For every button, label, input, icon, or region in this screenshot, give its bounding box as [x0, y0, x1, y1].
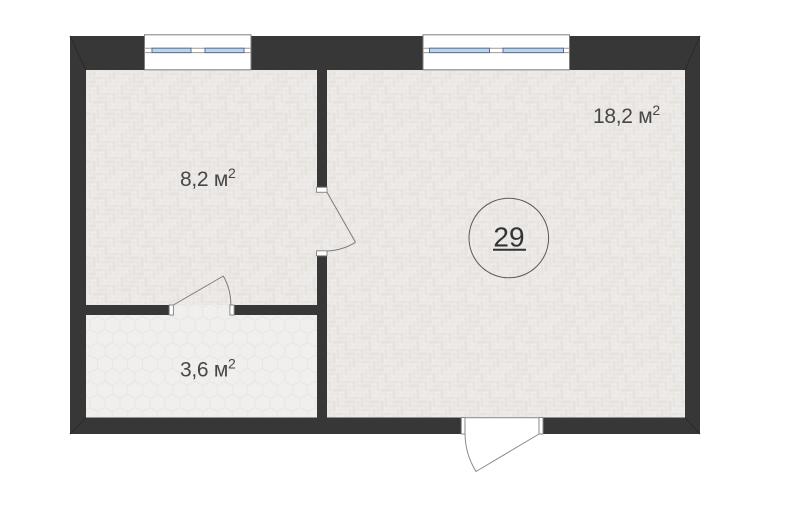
svg-text:18,2 м2: 18,2 м2	[593, 102, 660, 128]
svg-text:29: 29	[493, 222, 524, 253]
svg-text:3,6 м2: 3,6 м2	[180, 356, 236, 382]
svg-text:8,2 м2: 8,2 м2	[180, 165, 236, 191]
